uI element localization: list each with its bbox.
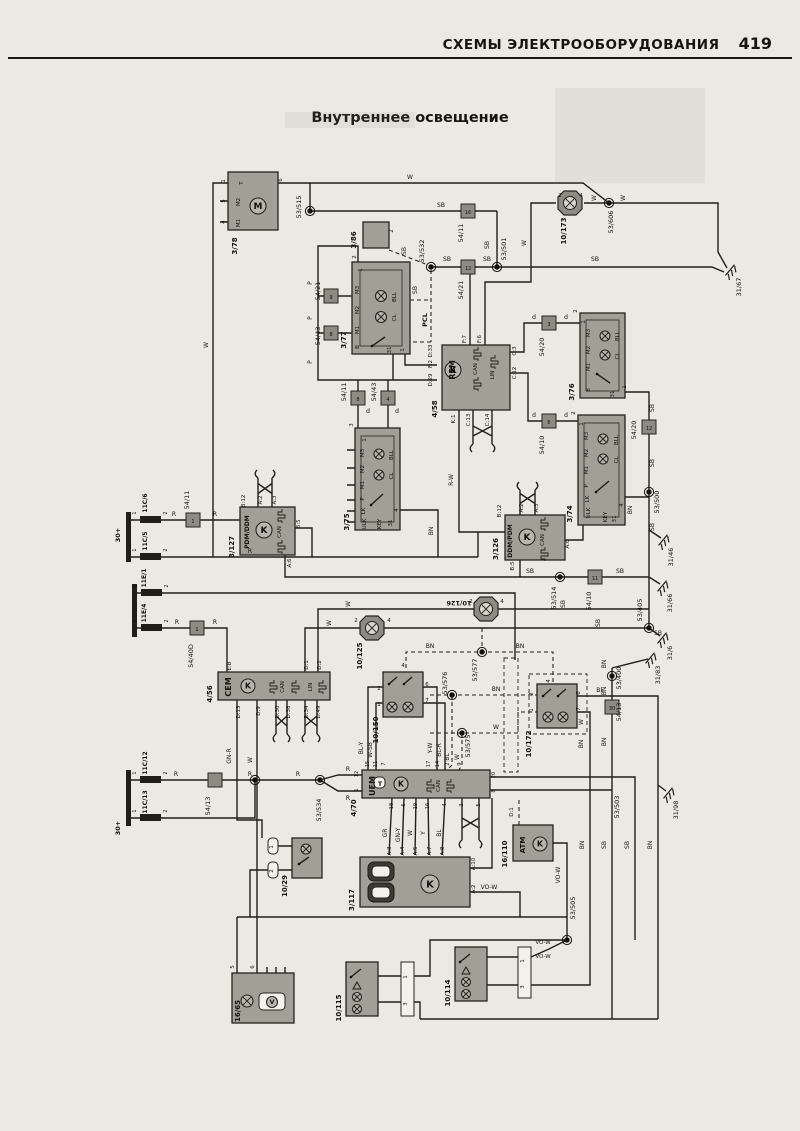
optional-outline-narrow xyxy=(504,658,518,772)
label-3: 3 xyxy=(349,423,355,427)
label-b-12: B:12 xyxy=(241,495,247,508)
label-can: CAN xyxy=(473,363,479,375)
label-10-126: 10/126 xyxy=(446,599,471,607)
label-y: Y xyxy=(420,831,427,836)
symbol-letter: K xyxy=(426,879,435,890)
label-6: 6 xyxy=(425,682,429,688)
ground-label-31-83: 31/83 xyxy=(654,666,662,685)
label-2: 2 xyxy=(469,599,473,605)
label-3: 3 xyxy=(459,803,465,806)
label-m2: M2 xyxy=(355,306,361,314)
label-w: W xyxy=(493,724,499,731)
symbol-letter: V xyxy=(269,998,274,1006)
label-d-1: D:1 xyxy=(304,660,310,670)
label-f-7: F:7 xyxy=(462,334,468,343)
label-53-501: 53/501 xyxy=(500,238,508,261)
label-bn: BN xyxy=(627,506,634,515)
label-r: R xyxy=(174,771,178,778)
label-54-40d: 54/40D xyxy=(187,644,195,668)
label-54-20: 54/20 xyxy=(538,338,546,357)
label-w: W xyxy=(203,342,210,348)
label-11c-13: 11C/13 xyxy=(142,790,149,813)
label-1: 1 xyxy=(358,268,364,272)
switch-pivot xyxy=(298,863,301,866)
label-2: 2 xyxy=(354,618,358,624)
label-b: B xyxy=(355,345,361,349)
label-bn: BN xyxy=(428,527,435,536)
switch-pivot xyxy=(596,373,599,376)
label-2: 2 xyxy=(389,229,395,233)
label-sb: SB xyxy=(591,256,599,263)
splice-dot xyxy=(606,200,611,205)
label-16: 16 xyxy=(465,210,471,216)
label-e-b: E:B xyxy=(227,661,233,670)
label-3-74: 3/74 xyxy=(566,505,574,522)
label-10-150: 10/150 xyxy=(372,716,380,743)
label-4-56: 4/56 xyxy=(206,685,214,702)
label-d: d xyxy=(532,314,536,321)
label-2: 2 xyxy=(558,193,562,199)
label-53-532: 53/532 xyxy=(418,240,426,263)
label-sb: SB xyxy=(483,256,491,263)
component-3-86 xyxy=(363,222,389,248)
power-bar-30plus xyxy=(126,770,131,826)
label-3: 3 xyxy=(520,985,526,989)
label-vo-w: VO-W xyxy=(481,884,498,891)
label-53-400: 53/400 xyxy=(615,667,623,690)
label-b: B xyxy=(586,388,592,392)
label-c-12: C:12 xyxy=(512,367,518,380)
label-2: 2 xyxy=(377,686,381,692)
label-sb: SB xyxy=(560,600,567,608)
label-4: 4 xyxy=(394,508,400,512)
label-12: 12 xyxy=(646,426,652,432)
symbol-letter: K xyxy=(398,780,405,789)
label-a-8: A:8 xyxy=(440,846,446,856)
splice-dot xyxy=(609,673,614,678)
label-sb: SB xyxy=(595,619,602,627)
fuse-11e4 xyxy=(141,624,162,631)
label-3: 3 xyxy=(403,1002,409,1006)
label-ulk: ULK xyxy=(362,518,368,529)
label-bll: BLL xyxy=(389,449,395,460)
label-m2: M2 xyxy=(360,465,366,473)
label-11c-12: 11C/12 xyxy=(142,751,149,774)
label-6: 6 xyxy=(250,965,256,969)
label-can: CAN xyxy=(280,681,286,693)
label-31: 31 xyxy=(610,391,616,398)
label-bn: BN xyxy=(601,738,608,747)
splice-dot xyxy=(557,574,562,579)
label-f-2: F:2 xyxy=(428,360,434,368)
label-6: 6 xyxy=(576,691,582,695)
symbol-letter: K xyxy=(524,533,532,543)
connector-54-13 xyxy=(208,773,222,787)
label-4: 4 xyxy=(442,803,448,806)
switch-pivot xyxy=(459,961,462,964)
label-54-11: 54/11 xyxy=(340,383,348,402)
scan-ghost xyxy=(285,112,415,128)
label-w: W xyxy=(591,195,598,201)
label-31: 31 xyxy=(387,347,393,354)
splice-dot xyxy=(564,937,569,942)
manual-page: СХЕМЫ ЭЛЕКТРООБОРУДОВАНИЯ 419 Внутреннее… xyxy=(0,0,800,1131)
label-sb: SB xyxy=(412,286,419,294)
label-8: 8 xyxy=(356,397,359,403)
splice-dot xyxy=(449,692,454,697)
plug-10-114 xyxy=(518,947,531,998)
label-1: 1 xyxy=(622,385,628,389)
label-d-13: D:13 xyxy=(236,705,242,719)
label-4: 4 xyxy=(546,679,552,683)
label-31: 31 xyxy=(612,516,618,523)
splice-dot xyxy=(646,489,651,494)
label-d-34: D:34 xyxy=(304,705,310,719)
label-54-10: 54/10 xyxy=(538,436,546,455)
component-10-172 xyxy=(537,684,577,728)
label-cl: CL xyxy=(392,314,398,322)
label-d: d xyxy=(564,412,568,419)
label-11: 11 xyxy=(592,576,598,582)
label-16-65: 16/65 xyxy=(234,1000,242,1022)
label-10-29: 10/29 xyxy=(281,875,289,897)
label-54-20: 54/20 xyxy=(630,421,638,440)
label-vo-w: VO-W xyxy=(535,940,551,946)
component-10-114 xyxy=(455,947,487,1001)
label-1: 1 xyxy=(377,702,381,708)
label-4: 4 xyxy=(387,618,391,624)
label-9: 9 xyxy=(457,762,463,765)
label-10-172: 10/172 xyxy=(525,730,533,757)
label-3-126: 3/126 xyxy=(492,538,500,560)
label-w: W xyxy=(620,195,627,201)
label-d-9: D:9 xyxy=(256,706,262,716)
label-m3: M3 xyxy=(586,328,592,337)
label-1: 1 xyxy=(133,619,139,622)
label-pcl: PCL xyxy=(421,313,429,327)
label-sb: SB xyxy=(654,630,662,637)
label-2: 2 xyxy=(163,548,169,551)
label-w: W xyxy=(247,757,254,763)
label-54-10: 54/10 xyxy=(585,592,593,611)
label-30: 30 xyxy=(609,706,615,712)
label-gr: GR xyxy=(382,829,389,838)
label-1: 1 xyxy=(195,627,198,633)
label-c-14: C:14 xyxy=(485,413,491,426)
label-d: d xyxy=(366,408,370,415)
label-sb: SB xyxy=(649,459,656,467)
ground-label-31-67: 31/67 xyxy=(735,278,743,297)
label-bl-r: BL-R xyxy=(436,743,443,757)
ground-label-31-66: 31/66 xyxy=(666,594,674,613)
label-a-3: A:3 xyxy=(272,495,278,505)
siren-icon-slot xyxy=(372,887,390,898)
label-key: KEY xyxy=(603,511,609,522)
label-11e-1: 11E/1 xyxy=(141,569,148,588)
label-d-1: D:1 xyxy=(509,807,515,817)
label-54-11: 54/11 xyxy=(183,491,191,510)
label-4: 4 xyxy=(221,220,227,224)
label-5: 5 xyxy=(476,803,482,806)
label-54-21: 54/21 xyxy=(457,281,465,300)
label-d-2: D:2 xyxy=(317,660,323,670)
component-10-115 xyxy=(346,962,378,1016)
label-a-4: A:4 xyxy=(400,846,406,856)
label-bn: BN xyxy=(578,740,585,749)
fuse-11c5 xyxy=(140,553,161,560)
label-w: W xyxy=(345,601,352,607)
label-a-2: A:2 xyxy=(471,884,477,893)
label-2: 2 xyxy=(269,869,275,873)
label-53-576: 53/576 xyxy=(441,672,449,695)
label-1: 1 xyxy=(132,511,138,514)
label-r: R xyxy=(175,619,179,626)
label-7: 7 xyxy=(381,762,387,765)
label-6: 6 xyxy=(547,420,550,426)
label-sb: SB xyxy=(526,568,534,575)
label-sb: SB xyxy=(616,568,624,575)
label-54-43: 54/43 xyxy=(370,383,378,402)
label-w: W xyxy=(326,620,333,626)
label-bn: BN xyxy=(516,643,525,650)
label-d-38: D:38 xyxy=(286,705,292,719)
label-sb: SB xyxy=(624,841,631,849)
symbol-letter: K xyxy=(537,840,544,849)
label-3-78: 3/78 xyxy=(231,237,239,254)
fuse-11c12 xyxy=(140,776,161,783)
label-30+: 30+ xyxy=(114,821,122,836)
label-sb: SB xyxy=(401,247,408,255)
switch-pivot xyxy=(371,345,374,348)
label-4-70: 4/70 xyxy=(350,799,358,816)
switch-pivot xyxy=(350,976,353,979)
label-uem: UEM xyxy=(368,776,377,796)
label-53-606: 53/606 xyxy=(607,211,615,234)
label-8: 8 xyxy=(491,789,497,792)
switch-pivot xyxy=(388,683,391,686)
label-lk: LK xyxy=(361,507,367,514)
label-d-29: D:29 xyxy=(428,373,434,387)
splice-dot xyxy=(317,777,322,782)
label-9: 9 xyxy=(329,295,332,301)
switch-pivot xyxy=(595,491,598,494)
label-54-13: 54/13 xyxy=(615,703,623,722)
label-bn: BN xyxy=(601,687,608,696)
label-10-173: 10/173 xyxy=(560,217,568,244)
label-r-w: R-W xyxy=(448,474,455,486)
label-w: W xyxy=(407,174,413,181)
label-pdm-ddm: PDM/DDM xyxy=(244,515,251,549)
label-m3: M3 xyxy=(360,448,366,457)
label-ddm-pdm: DDM/PDM xyxy=(507,524,514,558)
label-b-5: B:5 xyxy=(296,519,302,529)
label-11: 11 xyxy=(373,761,379,767)
label-a-3: A:3 xyxy=(387,846,393,856)
label-53-575: 53/575 xyxy=(464,735,472,758)
label-3-77: 3/77 xyxy=(340,331,348,348)
label-2: 2 xyxy=(571,411,577,415)
label-1: 1 xyxy=(133,584,139,587)
switch-pivot xyxy=(370,504,373,507)
label-bl: BL xyxy=(436,829,443,837)
label-1: 1 xyxy=(362,438,368,442)
label-bn: BN xyxy=(647,841,654,850)
label-ulk: ULK xyxy=(586,507,592,518)
label-bll: BLL xyxy=(392,291,398,302)
label-w-sb: W-SB xyxy=(367,742,374,758)
label-r: R xyxy=(248,771,252,778)
label-cl: CL xyxy=(614,456,620,464)
label-m1: M1 xyxy=(586,363,592,371)
label-w: W xyxy=(578,719,585,725)
label-m3: M3 xyxy=(355,285,361,294)
label-53-505: 53/505 xyxy=(569,897,577,920)
label-gn-y: GN-Y xyxy=(395,828,402,843)
label-1: 1 xyxy=(579,422,585,426)
power-bar-11e xyxy=(132,584,137,637)
label-d-33: D:33 xyxy=(428,344,434,358)
ground-label-31-6: 31/6 xyxy=(666,646,674,661)
label-53-534: 53/534 xyxy=(315,799,323,822)
label-can: CAN xyxy=(540,534,546,546)
label-1: 1 xyxy=(132,548,138,551)
label-19: 19 xyxy=(413,803,419,809)
label-12: 12 xyxy=(465,266,471,272)
switch-pivot xyxy=(557,695,560,698)
switch-pivot xyxy=(403,683,406,686)
switch-pivot xyxy=(542,695,545,698)
label-2: 2 xyxy=(164,584,170,587)
label-sb: SB xyxy=(437,202,445,209)
label-r: R xyxy=(172,511,176,518)
label-14: 14 xyxy=(435,761,441,767)
label-r: R xyxy=(346,766,350,773)
label-a-6: A:6 xyxy=(287,558,293,568)
label-gn-r: GN-R xyxy=(226,748,233,763)
splice-dot xyxy=(428,264,433,269)
label-11c-5: 11C/5 xyxy=(142,531,149,550)
label-a-6: A:6 xyxy=(565,539,571,549)
fuse-11c13 xyxy=(140,814,161,821)
label-16: 16 xyxy=(425,803,431,809)
label-b-5: B:5 xyxy=(510,561,516,571)
label-lin: LIN xyxy=(308,683,314,692)
label-53-503: 53/503 xyxy=(613,796,621,819)
label-2: 2 xyxy=(445,762,451,765)
label-m1: M1 xyxy=(360,481,366,489)
label-sb: SB xyxy=(484,241,491,249)
label-p: P xyxy=(307,360,314,364)
label-cl: CL xyxy=(615,352,621,360)
label-m1: M1 xyxy=(236,219,242,227)
label-t: T xyxy=(239,181,245,186)
label-54-13: 54/13 xyxy=(204,797,212,816)
label-r: R xyxy=(296,771,300,778)
label-bll: BLL xyxy=(614,434,620,445)
label-6: 6 xyxy=(278,178,284,182)
label-bll: BLL xyxy=(615,330,621,341)
label-18: 18 xyxy=(389,803,395,809)
label-2: 2 xyxy=(164,619,170,622)
label-2: 2 xyxy=(529,692,535,696)
label-w: W xyxy=(407,830,414,836)
scan-ghost xyxy=(555,88,705,183)
splice-dot xyxy=(479,649,484,654)
label-17: 17 xyxy=(426,761,432,767)
ground-label-31-46: 31/46 xyxy=(667,548,675,567)
label-d: d xyxy=(395,408,399,415)
label-54-43: 54/43 xyxy=(314,327,322,346)
label-1: 1 xyxy=(529,708,535,712)
label-a-3: A:3 xyxy=(534,503,540,513)
label-2: 2 xyxy=(352,255,358,259)
power-bar-30plus xyxy=(126,512,131,562)
label-1: 1 xyxy=(400,348,406,352)
label-5: 5 xyxy=(230,965,236,969)
label-bl: BL xyxy=(444,753,451,761)
label-a-5: A:5 xyxy=(413,846,419,856)
label-54-21: 54/21 xyxy=(314,282,322,301)
label-20: 20 xyxy=(491,772,497,778)
label-atm: ATM xyxy=(519,837,527,854)
label-3-76: 3/76 xyxy=(568,383,576,400)
label-2: 2 xyxy=(573,309,579,313)
label-1: 1 xyxy=(221,179,227,183)
label-m2: M2 xyxy=(236,198,242,206)
label-k-1: K:1 xyxy=(451,415,457,424)
label-w: W xyxy=(521,240,528,246)
label-a-10: A:10 xyxy=(471,857,477,870)
label-1: 1 xyxy=(132,809,138,812)
label-d-30: D:30 xyxy=(275,705,281,719)
label-bn: BN xyxy=(579,841,586,850)
label-a-2: A:2 xyxy=(519,503,525,512)
wiring-diagram: KKKKKKKMV31/6731/4631/6631/631/8331/983/… xyxy=(0,0,800,1131)
label-a-2: A:2 xyxy=(258,495,264,504)
label-3-127: 3/127 xyxy=(228,536,236,558)
label-1: 1 xyxy=(520,959,526,963)
label-rem: REM xyxy=(448,360,457,380)
label-1: 1 xyxy=(354,788,360,791)
label-10-125: 10/125 xyxy=(356,642,364,669)
label-sb: SB xyxy=(649,404,656,412)
fuse-11c6 xyxy=(140,516,161,523)
label-m2: M2 xyxy=(586,346,592,354)
plug-10-115 xyxy=(401,962,414,1016)
splice-dot xyxy=(646,625,651,630)
label-1: 1 xyxy=(581,320,587,324)
symbol-letter: K xyxy=(261,526,269,536)
label-30+: 30+ xyxy=(114,528,122,543)
label-d: d xyxy=(564,314,568,321)
label-8: 8 xyxy=(329,332,332,338)
label-lk: LK xyxy=(585,495,591,502)
label-4: 4 xyxy=(619,503,625,507)
label-cem: CEM xyxy=(224,677,233,696)
symbol-letter: M xyxy=(254,202,263,212)
label-3-117: 3/117 xyxy=(348,889,356,911)
label-53-405: 53/405 xyxy=(636,599,644,622)
label-12: 12 xyxy=(354,771,360,777)
splice-dot xyxy=(494,264,499,269)
label-11c-6: 11C/6 xyxy=(142,493,149,512)
label-d-49: D:49 xyxy=(316,705,322,719)
label-w: W xyxy=(454,754,461,760)
label-3-86: 3/86 xyxy=(350,231,358,248)
label-p: P xyxy=(307,316,314,320)
label-1: 1 xyxy=(132,771,138,774)
label-15: 15 xyxy=(365,761,371,767)
